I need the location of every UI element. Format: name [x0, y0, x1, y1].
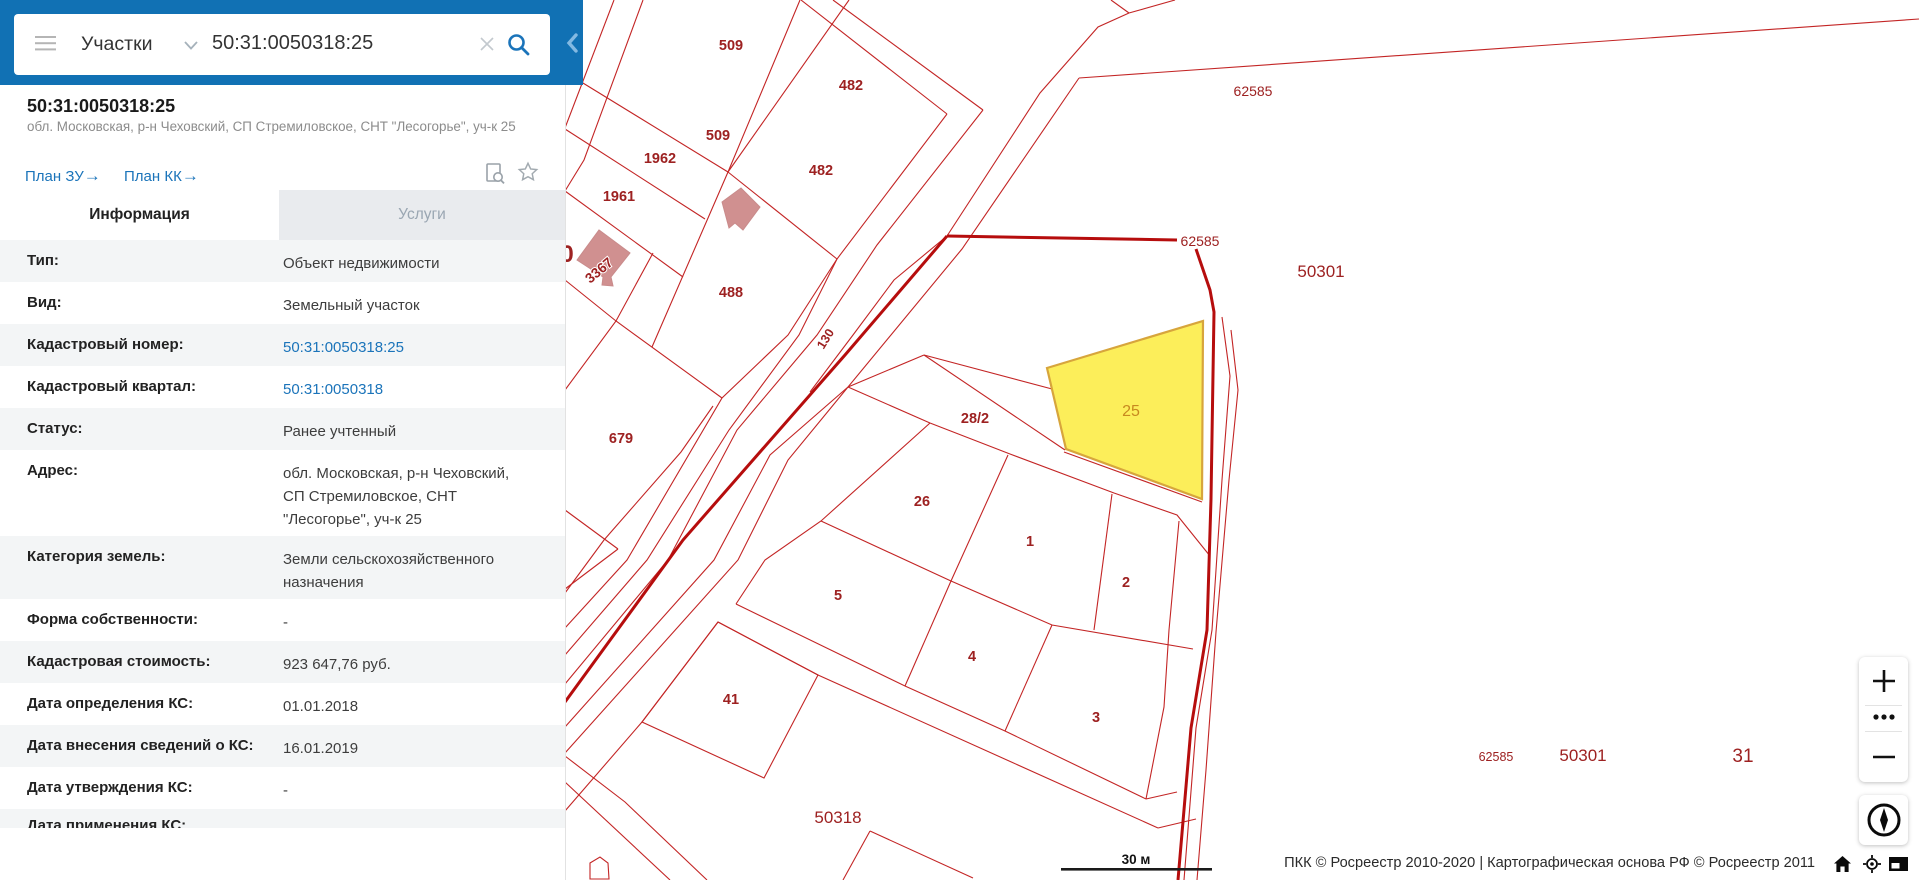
svg-text:28/2: 28/2 — [961, 411, 989, 427]
svg-text:25: 25 — [1122, 403, 1140, 420]
svg-text:50318: 50318 — [814, 808, 861, 827]
svg-text:3: 3 — [1092, 710, 1100, 726]
svg-text:679: 679 — [609, 431, 633, 447]
svg-text:62585: 62585 — [1479, 750, 1514, 764]
svg-text:1962: 1962 — [644, 151, 676, 167]
svg-text:482: 482 — [809, 163, 833, 179]
svg-text:2: 2 — [1122, 575, 1130, 591]
svg-text:62585: 62585 — [1234, 83, 1273, 99]
svg-text:509: 509 — [719, 38, 743, 54]
svg-text:4: 4 — [968, 649, 976, 665]
svg-text:488: 488 — [719, 285, 743, 301]
svg-text:482: 482 — [839, 78, 863, 94]
svg-text:31: 31 — [1732, 746, 1753, 767]
svg-text:5: 5 — [834, 588, 842, 604]
svg-text:41: 41 — [723, 692, 739, 708]
svg-text:62585: 62585 — [1181, 233, 1220, 249]
svg-text:50301: 50301 — [1297, 262, 1344, 281]
svg-text:1961: 1961 — [603, 189, 635, 205]
svg-text:26: 26 — [914, 494, 930, 510]
svg-text:509: 509 — [706, 128, 730, 144]
svg-text:1: 1 — [1026, 534, 1034, 550]
svg-text:130: 130 — [814, 326, 837, 351]
svg-text:50301: 50301 — [1559, 746, 1606, 765]
